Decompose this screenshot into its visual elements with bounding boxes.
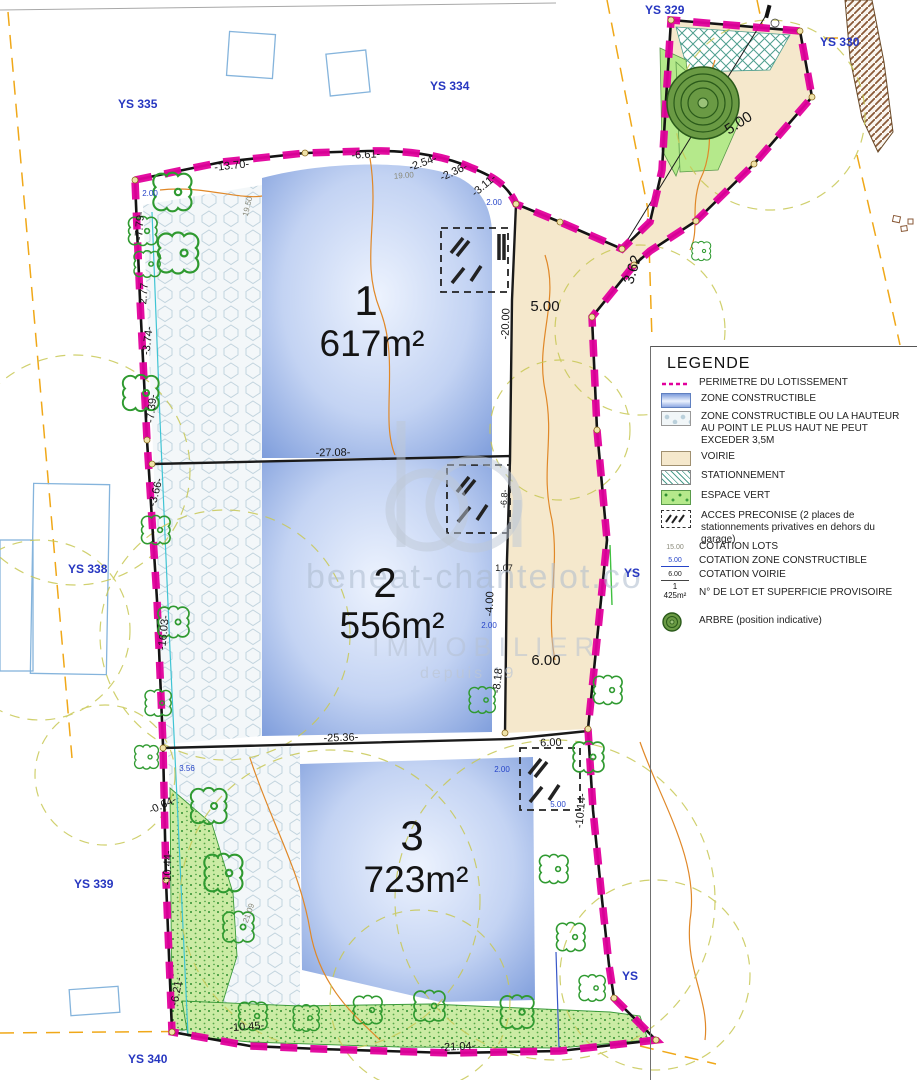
lot-area: 556m² [340,605,445,646]
dim-label: -20.00 [499,308,512,340]
dim-label: -10.14- [574,793,589,829]
voirie-swatch [661,451,691,466]
dim-label: 1.07 [495,563,513,573]
legend-item-perimeter: PERIMETRE DU LOTISSEMENT [661,377,904,390]
sheet-edge-line [0,3,556,10]
stationnement-swatch [661,470,691,485]
legend-title: LEGENDE [667,355,750,373]
dim-label: 5.00 [530,298,559,315]
parcel-label: YS 330 [820,35,860,49]
dim-label: -6.8- [498,489,509,508]
legend-item-espace-vert: ESPACE VERT [661,490,906,505]
dim-label: -4.00 [484,591,497,616]
parcel-label: YS [622,969,638,983]
parcel-label: YS 334 [430,79,470,93]
legend-item-voirie: VOIRIE [661,451,906,466]
legend-label: COTATION VOIRIE [699,569,904,581]
legend-label: ARBRE (position indicative) [699,615,904,627]
dim-label: -10.44- [161,850,174,886]
lot-area: 723m² [364,859,469,900]
parcel-label: YS [624,566,640,580]
parcel-label: YS 329 [645,3,685,17]
dim-label: 19.00 [394,170,415,180]
parcel-label: YS 339 [74,877,114,891]
dim-label: 2.77 [137,283,151,305]
lot-area-sample: 425m² [661,592,689,601]
site-plan: beneat-chantelot.co IMMOBILIER depuis 19… [0,0,917,1080]
legend-item-lot-number: 1 425m² N° DE LOT ET SUPERFICIE PROVISOI… [661,583,904,599]
dim-label: 2.00 [486,198,502,207]
legend-label: N° DE LOT ET SUPERFICIE PROVISOIRE [699,587,904,599]
dim-label: 3.56 [179,764,195,773]
watermark-name: beneat-chantelot.co [306,558,643,596]
dim-label: -7.79- [133,211,147,241]
legend-label: PERIMETRE DU LOTISSEMENT [699,377,904,389]
legend-item-cotation-voirie: 6.00 COTATION VOIRIE [661,569,904,582]
cotation-zc-swatch: 5.00 [661,558,689,567]
lot-number: 3 [400,812,423,859]
dim-label: 2.00 [142,189,158,198]
zone-35m-swatch [661,411,691,426]
dim-label: -21.04- [440,1040,476,1054]
dim-label: 2.00 [481,621,497,630]
legend-label: ZONE CONSTRUCTIBLE OU LA HAUTEUR AU POIN… [701,411,906,447]
cotation-voirie-swatch: 6.00 [661,572,689,581]
dim-label: 6.00 [540,737,562,750]
legend-item-cotation-zc: 5.00 COTATION ZONE CONSTRUCTIBLE [661,555,904,568]
dim-label: -8.18 [491,668,506,694]
legend-label: COTATION ZONE CONSTRUCTIBLE [699,555,904,567]
lot-number: 1 [354,277,377,324]
lot-number-swatch: 1 425m² [661,583,689,596]
legend-label: VOIRIE [701,451,906,463]
parcel-label: YS 338 [68,562,108,576]
dim-label: -13.70- [214,158,250,174]
legend-item-stationnement: STATIONNEMENT [661,470,906,485]
espace-vert-swatch [661,490,691,505]
tree-icon [661,611,689,624]
dim-label: 6.00 [531,652,560,669]
acces-swatch [661,510,691,528]
legend-label: ESPACE VERT [701,490,906,502]
cotation-lots-swatch: 15.00 [661,541,689,554]
zone-constructible-swatch [661,393,691,408]
dim-label: -27.08- [315,447,350,460]
legend-label: STATIONNEMENT [701,470,906,482]
dim-label: -10.45- [229,1020,265,1034]
lot-number: 2 [373,559,396,606]
legend-item-zone-35m: ZONE CONSTRUCTIBLE OU LA HAUTEUR AU POIN… [661,411,906,447]
dim-label: 5.00 [550,800,566,809]
lot-area: 617m² [320,323,425,364]
parcel-label: YS 335 [118,97,158,111]
legend-label: ZONE CONSTRUCTIBLE [701,393,906,405]
dim-label: 2.00 [494,765,510,774]
legend-item-zone-constructible: ZONE CONSTRUCTIBLE [661,393,906,408]
dim-label: -6.61- [351,148,381,162]
legend-panel: LEGENDE PERIMETRE DU LOTISSEMENT ZONE CO… [651,346,917,643]
perimeter-dash-swatch [661,377,689,390]
dim-label: -25.36- [323,731,359,744]
parcel-label: YS 340 [128,1052,168,1066]
legend-label: COTATION LOTS [699,541,904,553]
legend-item-cotation-lots: 15.00 COTATION LOTS [661,541,904,554]
legend-item-arbre: ARBRE (position indicative) [661,611,904,627]
